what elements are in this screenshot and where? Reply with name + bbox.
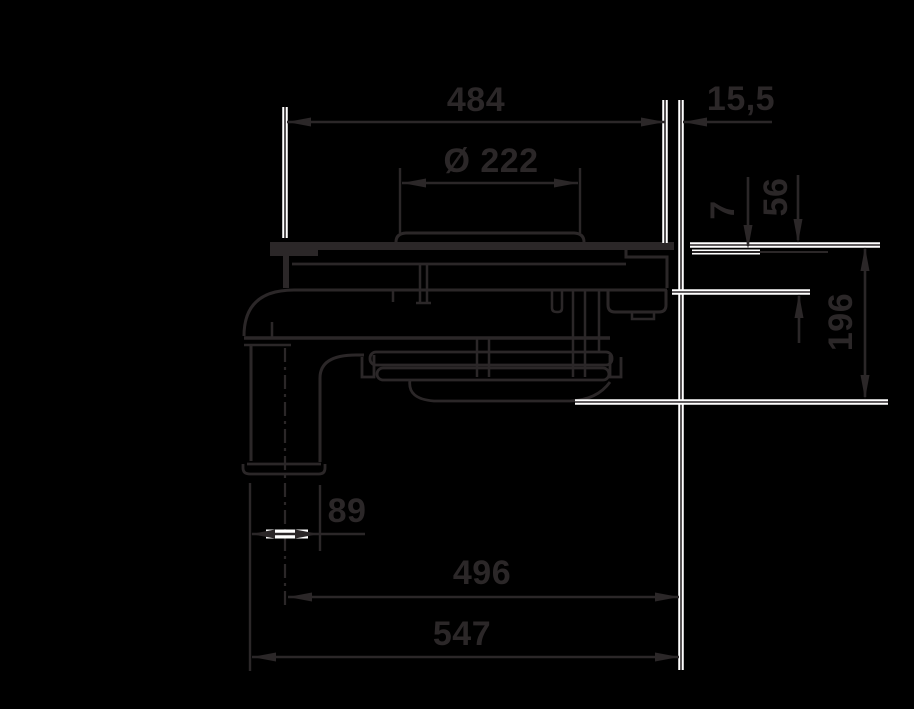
flange-left-clamp [270,250,318,256]
bowl-left-hook [362,355,374,377]
arrowhead-496-left [288,593,312,602]
dimension-7 [744,177,753,249]
dim-label-56: 56 [757,178,795,217]
dim-label-15-5: 15,5 [707,80,775,118]
flange-right-step [626,250,667,288]
clip-u [552,290,562,312]
grate-rim [396,233,584,242]
dimension-labels: 484 15,5 Ø 222 7 56 196 89 496 547 [328,80,860,653]
arrowhead-496-right [655,593,679,602]
arrowhead-222-right [554,179,578,188]
dim-label-196: 196 [822,293,860,351]
trap-bowl [362,352,621,401]
dim-label-496: 496 [453,554,511,592]
bowl-band-upper [370,352,612,365]
dimension-15-5 [683,118,772,127]
dim-label-222: Ø 222 [443,142,538,180]
arrowhead-15-5 [683,118,707,127]
clip-rib-b [477,338,489,377]
arrowhead-56-down [794,219,803,243]
dim-label-547: 547 [433,615,491,653]
arrowhead-222-left [402,179,426,188]
dimension-547 [252,653,679,662]
arrowhead-547-left [252,653,276,662]
arrowhead-196-up [861,247,870,271]
dimension-56 [794,175,804,343]
arrowhead-196-down [861,375,870,399]
dimension-496 [288,593,679,602]
technical-drawing-canvas: 484 15,5 Ø 222 7 56 196 89 496 547 [0,0,914,709]
arrowhead-89-left [251,530,275,539]
dim-label-484: 484 [447,81,505,119]
housing-underside [244,290,667,336]
arrowhead-484-right [641,118,665,127]
drain-trap-section-drawing: 484 15,5 Ø 222 7 56 196 89 496 547 [0,0,914,709]
flange-left-lip [283,250,289,288]
flange-plate [270,242,674,250]
arrowhead-484-left [287,118,311,127]
outlet-pipe [243,345,364,610]
arrowhead-56-up [795,294,804,318]
pipe-inner-wall [320,355,364,462]
dim-label-89: 89 [328,492,367,530]
bowl-dish [410,380,610,401]
dimension-196 [861,247,870,399]
arrowhead-547-right [655,653,679,662]
clip-rib-a [416,265,431,303]
dim-label-7: 7 [704,200,742,219]
right-cup [608,290,666,312]
